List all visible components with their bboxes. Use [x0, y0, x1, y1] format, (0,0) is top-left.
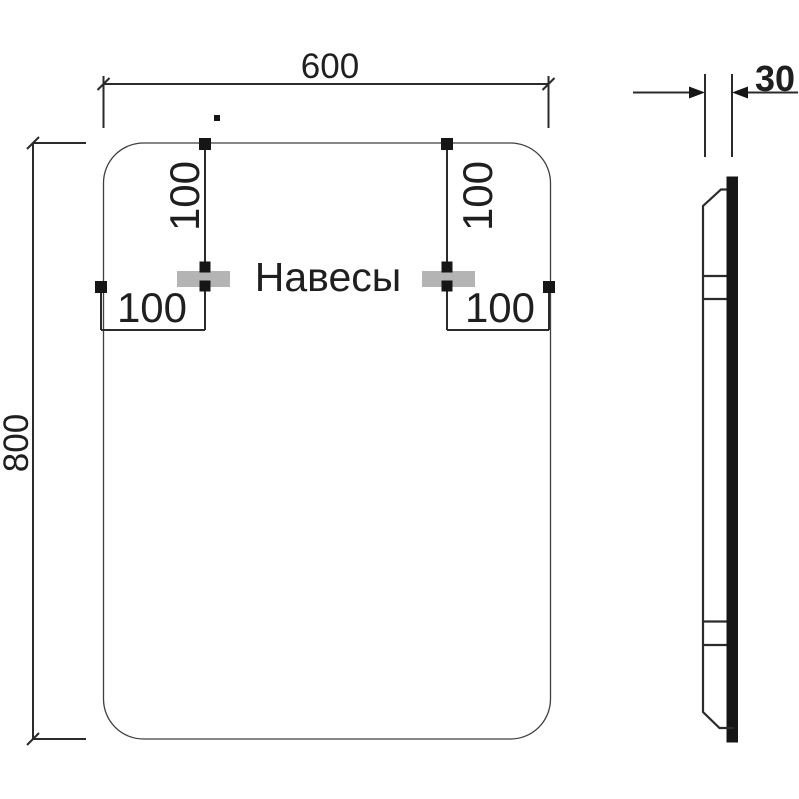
- top-edge-marker: [199, 138, 211, 150]
- side-edge-marker: [543, 281, 555, 293]
- mount-point-marker: [442, 281, 453, 292]
- width-dimension: 600: [98, 47, 555, 128]
- side-edge-marker: [95, 281, 107, 293]
- reference-dot: [214, 115, 220, 121]
- front-view: 600 800 100 100: [0, 47, 555, 745]
- mount-point-marker: [200, 281, 211, 292]
- mount-point-marker: [442, 262, 453, 273]
- left-hanger-top-offset-label: 100: [161, 161, 208, 231]
- height-dimension: 800: [0, 137, 86, 745]
- left-hanger-side-offset-label: 100: [117, 284, 187, 331]
- depth-dimension: 30: [633, 58, 798, 157]
- top-edge-marker: [441, 138, 453, 150]
- glass-edge: [727, 177, 739, 743]
- mount-point-marker: [200, 262, 211, 273]
- arrowhead-right-icon: [689, 87, 705, 99]
- right-hanger-top-offset-label: 100: [454, 161, 501, 231]
- side-view: 30: [633, 58, 798, 743]
- width-dimension-label: 600: [301, 47, 359, 86]
- technical-drawing: 600 800 100 100: [0, 0, 799, 799]
- mirror-outline: [104, 143, 551, 739]
- arrowhead-left-icon: [732, 87, 748, 99]
- mirror-profile: [703, 177, 738, 743]
- hangers-caption: Навесы: [255, 254, 402, 300]
- right-hanger-side-offset-label: 100: [465, 284, 535, 331]
- left-hanger: 100 100: [95, 138, 230, 331]
- height-dimension-label: 800: [0, 414, 36, 472]
- right-hanger: 100 100: [422, 138, 555, 331]
- depth-dimension-label: 30: [755, 58, 795, 99]
